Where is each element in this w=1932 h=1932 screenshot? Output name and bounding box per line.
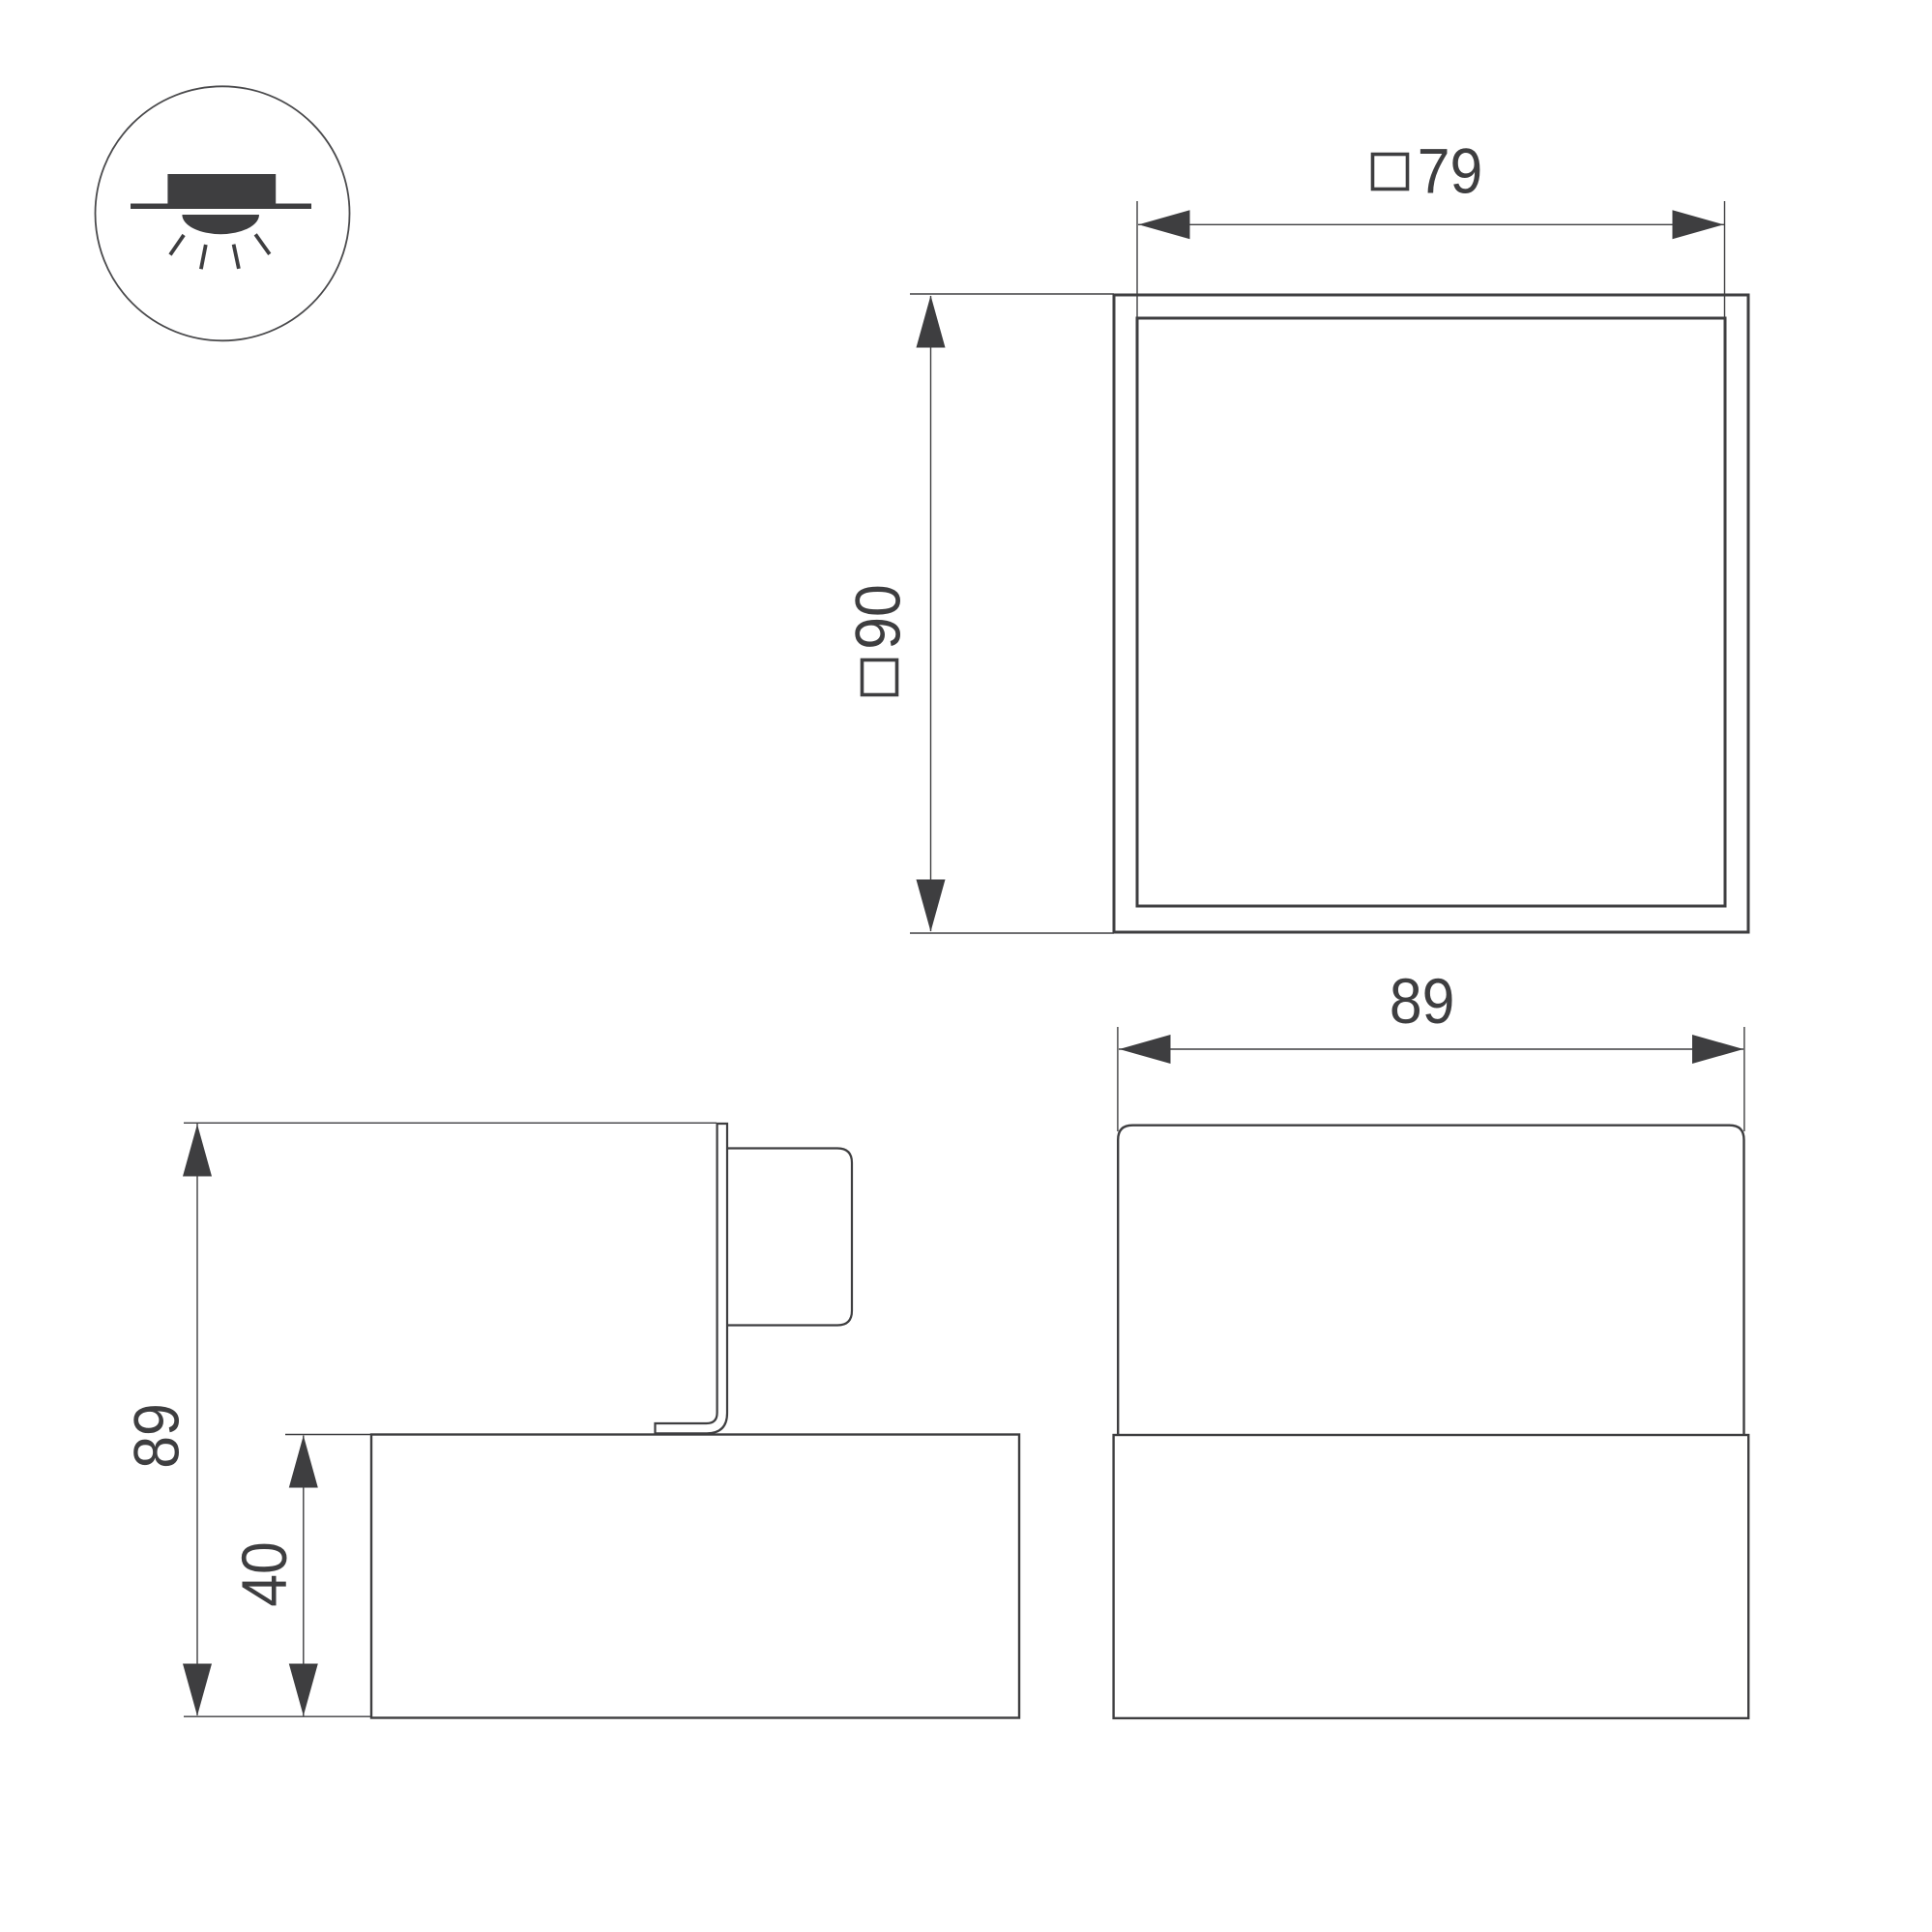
svg-text:89: 89 — [122, 1403, 192, 1469]
svg-text:89: 89 — [1390, 967, 1455, 1038]
svg-text:79: 79 — [1418, 136, 1483, 207]
svg-text:90: 90 — [843, 584, 914, 650]
svg-text:40: 40 — [230, 1541, 301, 1607]
